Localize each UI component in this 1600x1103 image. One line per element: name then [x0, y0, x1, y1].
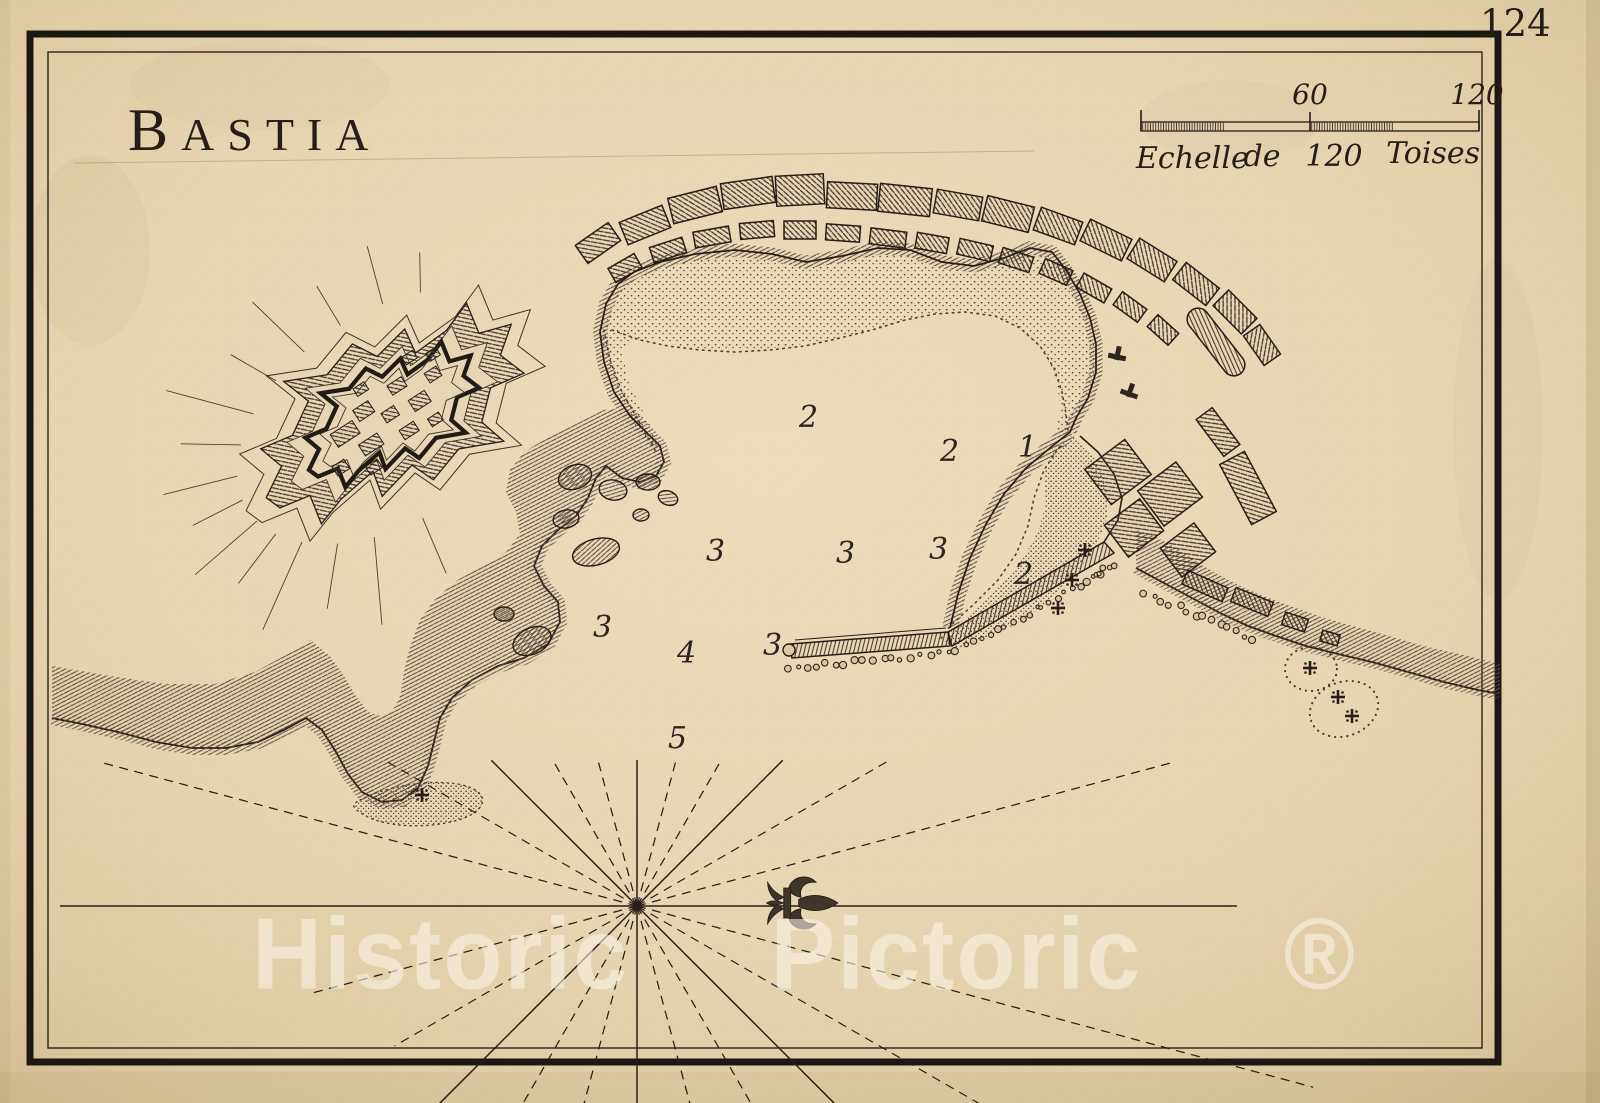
mole-rock — [1039, 606, 1043, 610]
mole-rock — [888, 655, 894, 661]
coast-rock — [1153, 594, 1157, 598]
coast-rock — [1165, 602, 1171, 608]
mole-rock — [785, 665, 792, 672]
scale-caption-de: de — [1244, 139, 1281, 174]
depth-sounding: 1 — [1018, 430, 1037, 465]
islet-rock — [636, 474, 660, 490]
anchorage-cross-icon — [1331, 690, 1345, 704]
scale-mid-label: 60 — [1292, 78, 1328, 111]
coast-rock — [1223, 624, 1229, 630]
depth-sounding: 4 — [676, 636, 696, 671]
mole-rock — [859, 657, 866, 664]
mole-rock — [813, 664, 819, 670]
mole-rock — [1011, 619, 1017, 625]
depth-sounding: 3 — [593, 610, 612, 645]
town-block — [739, 221, 774, 240]
title-initial: B — [128, 97, 181, 163]
depth-sounding: 5 — [668, 721, 687, 756]
mole-rock — [833, 662, 839, 668]
mole-rock — [1111, 563, 1117, 569]
mole-rock — [970, 638, 976, 644]
depth-sounding: 3 — [929, 532, 948, 567]
town-block — [826, 182, 877, 211]
town-block — [869, 228, 907, 248]
depth-sounding: 3 — [706, 534, 725, 569]
coast-rock — [1157, 598, 1164, 605]
coast-rock — [1248, 636, 1255, 643]
coast-rock — [1178, 602, 1185, 609]
compass-center — [635, 904, 640, 909]
coast-rock — [1140, 590, 1147, 597]
mole-rock — [989, 633, 994, 638]
coast-rock — [1233, 627, 1239, 633]
mole-rock — [1100, 565, 1106, 571]
coast-rock — [1198, 612, 1205, 619]
mole-rock — [928, 652, 935, 659]
mole-rock — [1056, 596, 1062, 602]
mole-rock — [1083, 578, 1090, 585]
town-block — [825, 224, 860, 242]
scale-caption-echelle: Echelle — [1135, 141, 1249, 176]
mole-rock — [980, 637, 984, 641]
title-rest: ASTIA — [181, 109, 381, 160]
mole-rock — [947, 650, 951, 654]
town-block — [784, 221, 816, 239]
anchorage-cross-icon — [1078, 543, 1092, 557]
mole-rock — [839, 661, 846, 668]
scale-caption-120: 120 — [1305, 139, 1362, 174]
mole-rock — [1021, 616, 1027, 622]
town-block — [775, 174, 825, 206]
mole-rock — [851, 657, 858, 664]
mole-rock — [897, 658, 901, 662]
mole-rock — [1062, 590, 1066, 594]
depth-sounding: 2 — [1013, 557, 1033, 592]
mole-rock — [869, 657, 876, 664]
antique-chart-page: 22133323435 124 BASTIA 60 120 Echelle de… — [0, 0, 1600, 1103]
mole-rock — [907, 655, 914, 662]
islet-rock — [494, 607, 514, 621]
depth-sounding: 2 — [798, 400, 818, 435]
mole-rock — [964, 642, 968, 646]
mole-rock — [995, 626, 1002, 633]
coast-rock — [1208, 616, 1215, 623]
depth-sounding: 3 — [763, 628, 782, 663]
mole-rock — [1097, 572, 1101, 576]
coast-rock — [1183, 609, 1189, 615]
anchorage-cross-icon — [1303, 661, 1317, 675]
coast-rock — [1242, 635, 1246, 639]
page-number: 124 — [1480, 2, 1551, 45]
depth-sounding: 2 — [939, 434, 959, 469]
mole-rock — [1001, 625, 1005, 629]
mole-rock — [797, 665, 801, 669]
mole-rock — [1027, 613, 1032, 618]
scale-caption-toises: Toises — [1386, 136, 1480, 171]
anchorage-cross-icon — [1051, 601, 1065, 615]
mole-rock — [918, 652, 922, 656]
mole-rock — [804, 665, 811, 672]
islet-rock — [633, 509, 649, 521]
anchorage-cross-icon — [415, 788, 429, 802]
mole-rock — [821, 659, 828, 666]
town-block — [878, 183, 933, 216]
anchorage-cross-icon — [1345, 709, 1359, 723]
mole-rock — [1046, 600, 1051, 605]
anchorage-cross-icon — [1065, 573, 1079, 587]
mole-rock — [951, 648, 958, 655]
scale-end-label: 120 — [1450, 78, 1503, 111]
depth-sounding: 3 — [836, 536, 855, 571]
map-canvas: 22133323435 124 BASTIA 60 120 Echelle de… — [0, 0, 1600, 1103]
mole-rock — [937, 650, 941, 654]
